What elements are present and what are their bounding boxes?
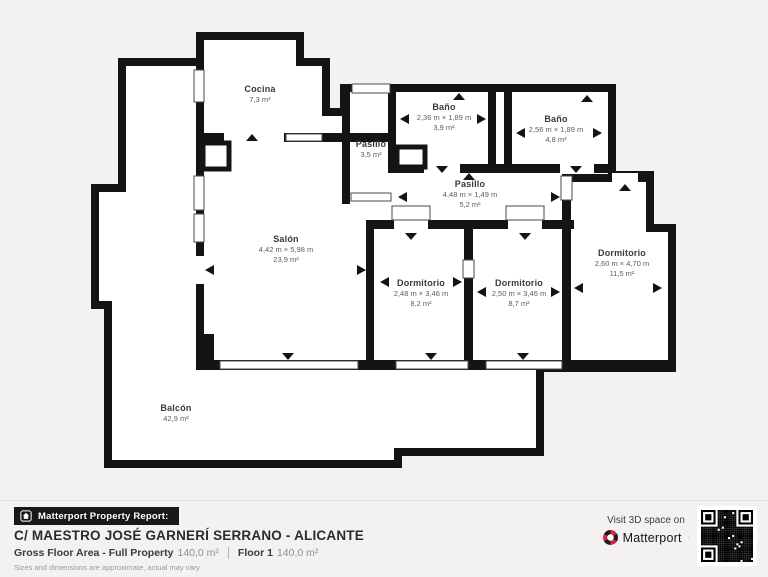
room-dims: 4,48 m × 1,49 m	[443, 190, 497, 200]
report-footer: Matterport Property Report: C/ MAESTRO J…	[0, 500, 768, 577]
floor-plan-drawing	[0, 0, 768, 500]
room-label-dormitorio-3: Dormitorio 2,60 m × 4,70 m 11,5 m²	[595, 248, 649, 279]
room-label-balcon: Balcón 42,9 m²	[160, 403, 191, 424]
separator	[228, 547, 229, 559]
room-label-bano-1: Baño 2,36 m × 1,89 m 3,9 m²	[417, 102, 471, 133]
trademark-mark: ·	[688, 535, 690, 541]
disclaimer-text: Sizes and dimensions are approximate, ac…	[14, 563, 200, 572]
room-name: Baño	[529, 114, 583, 125]
floor-plan: Cocina 7,3 m² Pasillo 3,5 m² Baño 2,36 m…	[0, 0, 768, 500]
room-dims: 2,60 m × 4,70 m	[595, 259, 649, 269]
room-dims: 2,48 m × 3,46 m	[394, 289, 448, 299]
room-name: Salón	[259, 234, 313, 245]
report-badge: Matterport Property Report:	[14, 507, 179, 525]
room-dims: 2,36 m × 1,89 m	[417, 113, 471, 123]
room-area: 4,8 m²	[529, 135, 583, 145]
room-area: 8,7 m²	[492, 299, 546, 309]
gross-floor-area-value: 140,0 m²	[177, 547, 218, 559]
house-icon	[20, 510, 32, 522]
room-area: 3,9 m²	[417, 123, 471, 133]
room-name: Dormitorio	[595, 248, 649, 259]
room-label-dormitorio-1: Dormitorio 2,48 m × 3,46 m 8,2 m²	[394, 278, 448, 309]
floor-label: Floor 1	[238, 547, 273, 559]
room-label-bano-2: Baño 2,56 m × 1,89 m 4,8 m²	[529, 114, 583, 145]
room-area: 23,9 m²	[259, 255, 313, 265]
room-label-pasillo-main: Pasillo 4,48 m × 1,49 m 5,2 m²	[443, 179, 497, 210]
room-name: Balcón	[160, 403, 191, 414]
matterport-logo-icon	[603, 530, 618, 545]
room-area: 11,5 m²	[595, 269, 649, 279]
room-area: 5,2 m²	[443, 200, 497, 210]
floor-value: 140,0 m²	[277, 547, 318, 559]
room-area: 3,5 m²	[356, 150, 386, 160]
room-dims: 2,56 m × 1,89 m	[529, 125, 583, 135]
gross-floor-area-label: Gross Floor Area - Full Property	[14, 547, 173, 559]
room-area: 42,9 m²	[160, 414, 191, 424]
room-label-salon: Salón 4,42 m × 5,98 m 23,9 m²	[259, 234, 313, 265]
visit-3d-text: Visit 3D space on	[598, 515, 694, 526]
qr-code	[701, 510, 753, 562]
room-label-dormitorio-2: Dormitorio 2,50 m × 3,46 m 8,7 m²	[492, 278, 546, 309]
room-area: 7,3 m²	[244, 95, 275, 105]
room-dims: 2,50 m × 3,46 m	[492, 289, 546, 299]
room-name: Baño	[417, 102, 471, 113]
room-name: Pasillo	[443, 179, 497, 190]
area-summary: Gross Floor Area - Full Property 140,0 m…	[14, 547, 318, 559]
room-name: Pasillo	[356, 139, 386, 150]
room-label-pasillo-small: Pasillo 3,5 m²	[356, 139, 386, 160]
matterport-wordmark: Matterport	[623, 531, 682, 545]
qr-card	[697, 506, 757, 566]
matterport-link[interactable]: Matterport·	[598, 530, 694, 545]
room-name: Cocina	[244, 84, 275, 95]
room-name: Dormitorio	[492, 278, 546, 289]
room-area: 8,2 m²	[394, 299, 448, 309]
room-name: Dormitorio	[394, 278, 448, 289]
report-badge-label: Matterport Property Report:	[38, 511, 169, 522]
room-label-cocina: Cocina 7,3 m²	[244, 84, 275, 105]
property-address: C/ MAESTRO JOSÉ GARNERÍ SERRANO - ALICAN…	[14, 528, 364, 543]
room-dims: 4,42 m × 5,98 m	[259, 245, 313, 255]
